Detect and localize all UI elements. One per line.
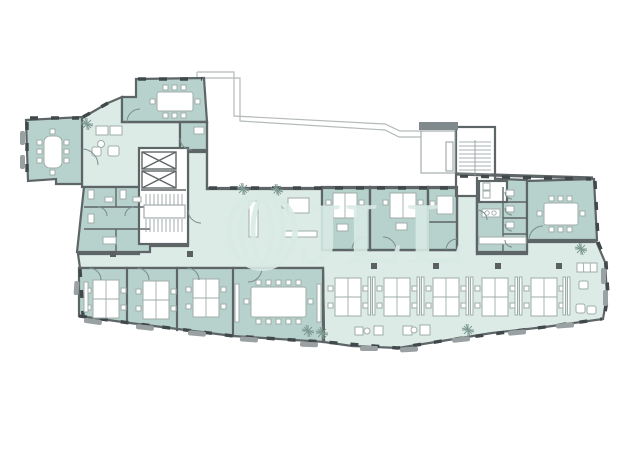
room-small-office — [180, 122, 207, 150]
roof-outline — [197, 72, 421, 137]
floor-plan: JLL — [0, 0, 626, 470]
wall-tab — [419, 122, 458, 130]
small-office-fixture — [194, 127, 204, 134]
radiator — [84, 282, 88, 312]
watermark-text: JLL — [298, 186, 468, 283]
shaft-inner — [446, 142, 453, 171]
